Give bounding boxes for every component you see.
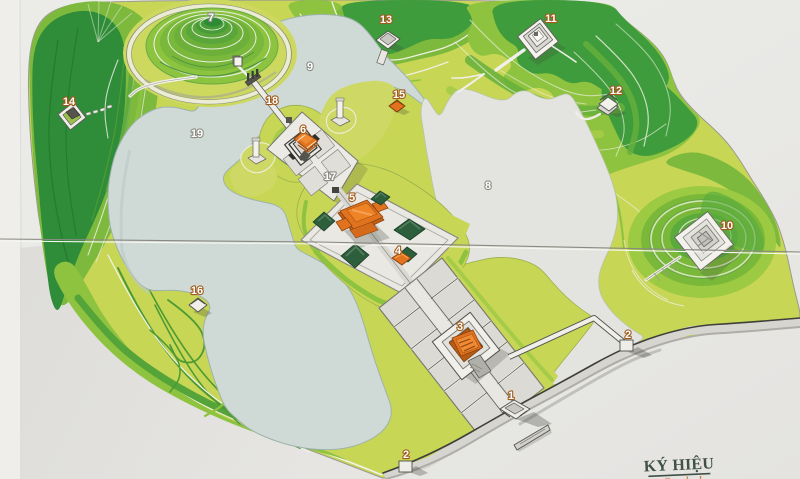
- svg-text:8: 8: [485, 180, 491, 192]
- svg-text:2: 2: [403, 449, 409, 461]
- svg-text:11: 11: [545, 13, 557, 25]
- svg-text:15: 15: [393, 89, 405, 101]
- svg-text:4: 4: [395, 245, 402, 257]
- svg-text:18: 18: [266, 95, 278, 107]
- svg-text:1: 1: [508, 390, 514, 402]
- svg-text:19: 19: [191, 128, 203, 140]
- svg-text:17: 17: [324, 171, 336, 183]
- svg-text:9: 9: [307, 61, 313, 73]
- svg-text:14: 14: [63, 96, 76, 108]
- svg-text:7: 7: [208, 12, 214, 24]
- svg-text:13: 13: [380, 14, 392, 26]
- svg-text:12: 12: [610, 85, 622, 97]
- svg-text:2: 2: [625, 329, 631, 341]
- svg-text:5: 5: [349, 192, 355, 204]
- svg-text:3: 3: [457, 321, 463, 333]
- svg-text:10: 10: [721, 220, 733, 232]
- svg-text:Symbol: Symbol: [663, 473, 702, 479]
- svg-text:6: 6: [300, 124, 306, 136]
- svg-text:16: 16: [191, 285, 203, 297]
